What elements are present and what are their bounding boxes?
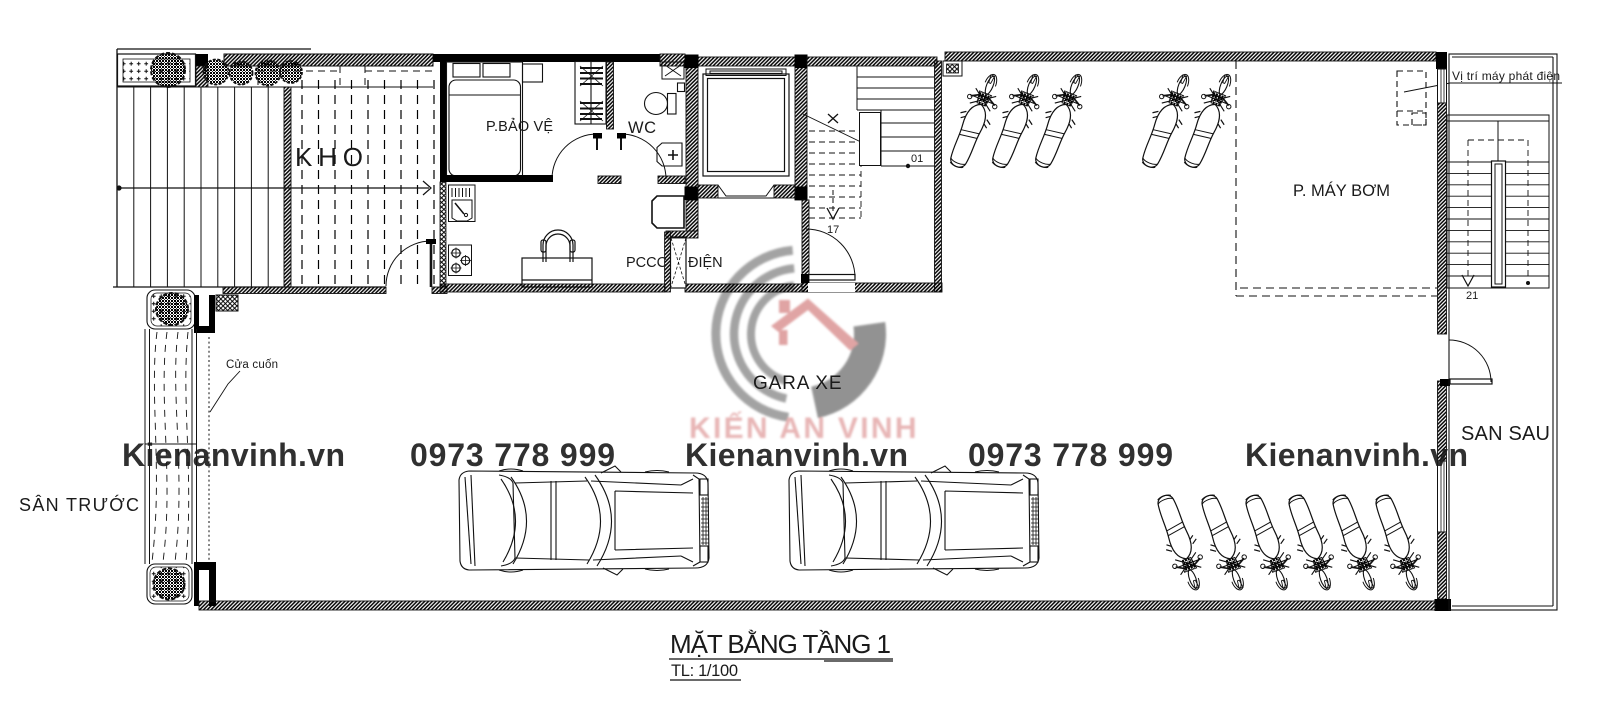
svg-text:01: 01	[911, 153, 923, 165]
svg-text:Kienanvinh.vn: Kienanvinh.vn	[1245, 437, 1468, 473]
svg-text:Cửa cuốn: Cửa cuốn	[226, 359, 278, 371]
svg-text:21: 21	[1466, 290, 1478, 302]
svg-text:P.BẢO VỆ: P.BẢO VỆ	[486, 118, 553, 135]
svg-text:PCCC: PCCC	[626, 255, 667, 271]
svg-text:SÂN TRƯỚC: SÂN TRƯỚC	[19, 494, 139, 515]
svg-text:MẶT BẰNG TẦNG 1: MẶT BẰNG TẦNG 1	[670, 629, 891, 659]
svg-text:0973 778 999: 0973 778 999	[410, 437, 615, 473]
svg-text:TL: 1/100: TL: 1/100	[671, 662, 738, 680]
svg-text:KHO: KHO	[295, 142, 369, 172]
svg-text:GARA XE: GARA XE	[753, 373, 843, 394]
svg-text:SAN SAU: SAN SAU	[1461, 423, 1550, 445]
svg-text:ĐIỆN: ĐIỆN	[688, 254, 723, 271]
svg-text:0973 778 999: 0973 778 999	[968, 437, 1173, 473]
svg-text:P. MÁY BƠM: P. MÁY BƠM	[1293, 181, 1390, 200]
svg-text:Vị trí máy phát điện: Vị trí máy phát điện	[1452, 69, 1560, 83]
svg-text:Kienanvinh.vn: Kienanvinh.vn	[122, 437, 345, 473]
svg-text:WC: WC	[628, 119, 656, 137]
svg-text:Kienanvinh.vn: Kienanvinh.vn	[685, 437, 908, 473]
